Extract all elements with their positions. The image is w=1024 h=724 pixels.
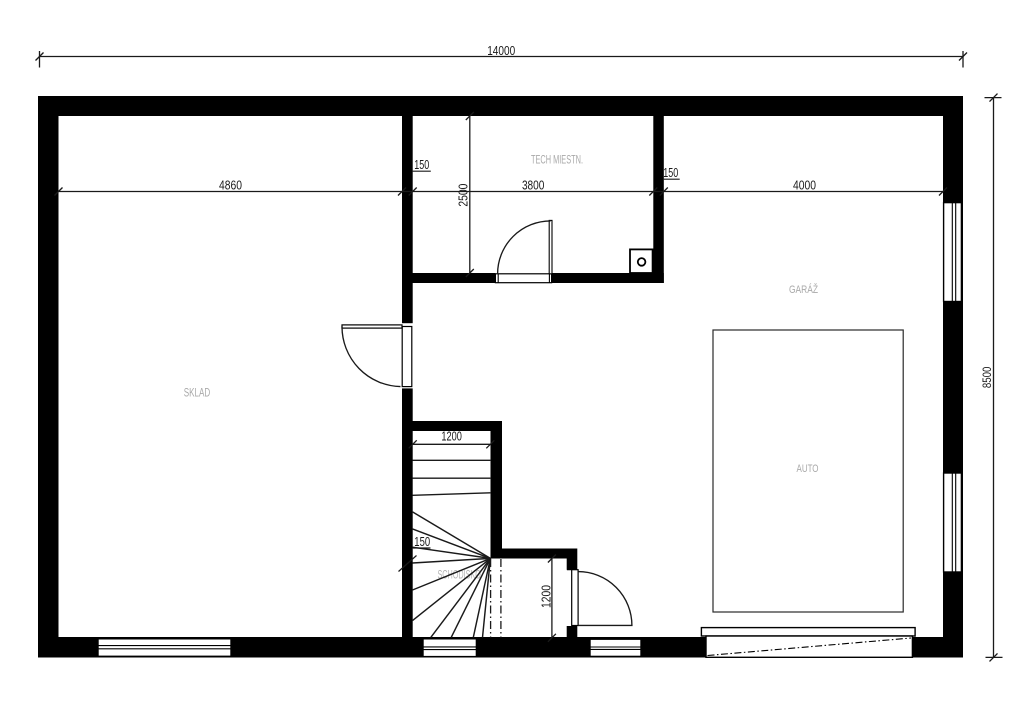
svg-text:TECH MIESTN.: TECH MIESTN. xyxy=(531,152,583,166)
svg-text:4860: 4860 xyxy=(219,178,242,192)
svg-text:14000: 14000 xyxy=(487,44,515,58)
svg-text:150: 150 xyxy=(414,158,429,172)
svg-text:2500: 2500 xyxy=(457,184,471,207)
svg-text:4000: 4000 xyxy=(793,178,816,192)
svg-text:3800: 3800 xyxy=(522,178,545,192)
svg-text:1200: 1200 xyxy=(539,585,553,608)
svg-text:150: 150 xyxy=(414,535,430,549)
svg-text:AUTO: AUTO xyxy=(797,463,819,475)
svg-text:1200: 1200 xyxy=(441,429,462,443)
svg-text:GARÁŽ: GARÁŽ xyxy=(789,283,818,296)
svg-text:8500: 8500 xyxy=(981,367,994,389)
svg-text:150: 150 xyxy=(663,166,678,180)
svg-text:SKLAD: SKLAD xyxy=(184,385,211,399)
